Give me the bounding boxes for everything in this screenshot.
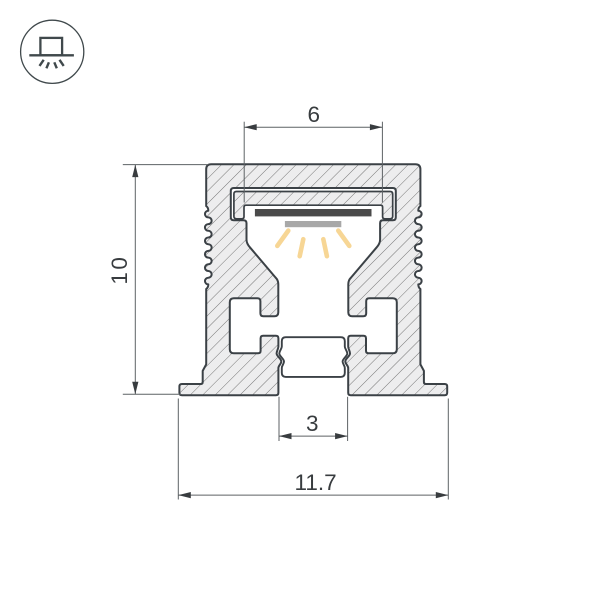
svg-text:10: 10 [107, 255, 132, 285]
svg-text:6: 6 [307, 102, 320, 127]
svg-text:3: 3 [306, 411, 319, 436]
svg-text:11.7: 11.7 [295, 470, 337, 495]
